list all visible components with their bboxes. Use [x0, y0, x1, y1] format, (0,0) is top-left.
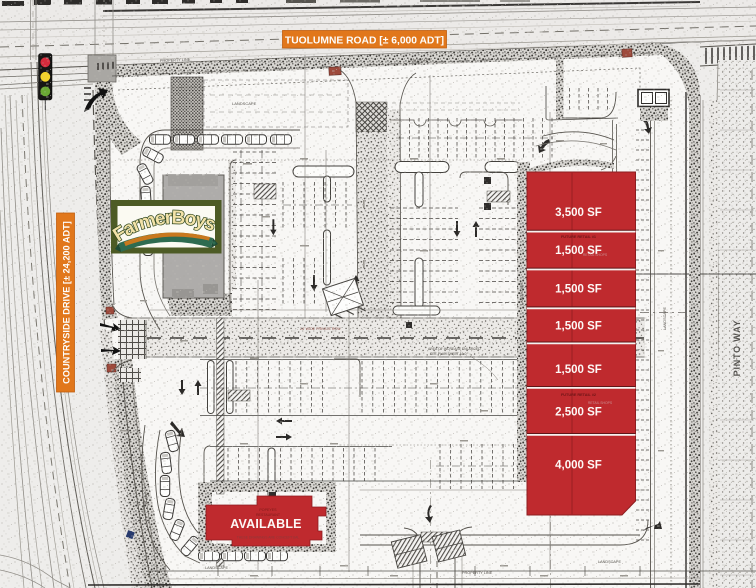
svg-text:1,500 SF: 1,500 SF: [555, 284, 602, 296]
svg-text:LANDSCAPE: LANDSCAPE: [205, 566, 228, 570]
svg-text:FUTURE RETAIL #1: FUTURE RETAIL #1: [561, 235, 596, 239]
svg-text:1,500 SF: 1,500 SF: [555, 364, 602, 376]
svg-text:3,500 SF: 3,500 SF: [555, 207, 602, 219]
svg-text:RETAIL SHOPS: RETAIL SHOPS: [583, 253, 608, 257]
svg-text:POPEYES: POPEYES: [259, 508, 277, 512]
svg-text:2,500 SF: 2,500 SF: [555, 407, 602, 419]
svg-text:LANDSCAPE: LANDSCAPE: [520, 282, 524, 305]
svg-text:AVAILABLE: AVAILABLE: [230, 517, 301, 531]
svg-text:LANDSCAPE: LANDSCAPE: [598, 560, 621, 564]
svg-text:COUNTRYSIDE DRIVE [± 24,200 AD: COUNTRYSIDE DRIVE [± 24,200 ADT]: [62, 221, 72, 384]
svg-text:FUTURE RETAIL #2: FUTURE RETAIL #2: [561, 393, 596, 397]
svg-text:4,000 SF: 4,000 SF: [555, 460, 602, 472]
svg-text:1,500 SF: 1,500 SF: [555, 321, 602, 333]
svg-text:TUOLUMNE ROAD [± 6,000 ADT]: TUOLUMNE ROAD [± 6,000 ADT]: [285, 36, 444, 47]
svg-text:THESE DRAWINGS ARE CONCEPTUAL: THESE DRAWINGS ARE CONCEPTUAL: [237, 536, 300, 540]
svg-text:LANDSCAPE: LANDSCAPE: [663, 307, 667, 330]
svg-text:RETAIL SHOPS: RETAIL SHOPS: [588, 401, 613, 405]
svg-text:PROPERTY LINE: PROPERTY LINE: [462, 571, 493, 575]
